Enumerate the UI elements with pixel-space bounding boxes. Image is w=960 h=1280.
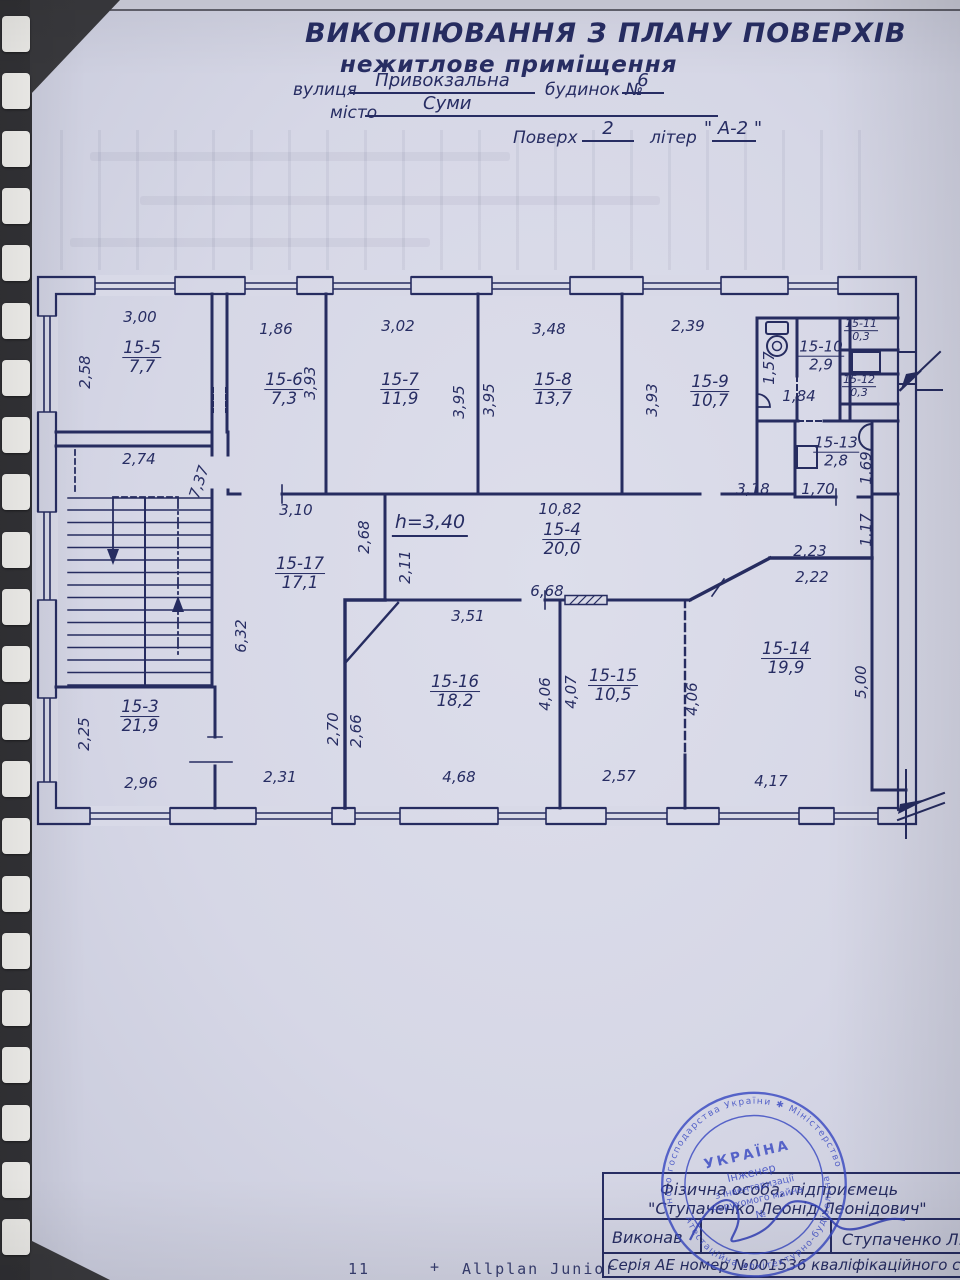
stairs-up-arrow	[172, 596, 184, 612]
room-area: 2,9	[798, 357, 844, 374]
dimension-label: 3,10	[279, 501, 312, 519]
dimension-label: 10,82	[539, 500, 582, 518]
hatched-opening	[565, 596, 607, 605]
dimension-label: 2,70	[324, 712, 342, 745]
room-area: 7,3	[264, 391, 303, 409]
footer-number: 11	[348, 1260, 370, 1278]
room-area: 13,7	[533, 391, 572, 409]
stairs-down-arrow	[107, 549, 119, 565]
signature	[655, 1178, 925, 1258]
room-number: 15-11	[844, 318, 878, 331]
room-number: 15-17	[275, 555, 325, 574]
room-area: 0,3	[844, 332, 878, 344]
room-number: 15-3	[120, 698, 159, 717]
section-mark-bottom	[898, 770, 944, 838]
dimension-label: 1,17	[857, 513, 875, 546]
dimension-label: 2,66	[347, 714, 365, 747]
dimension-label: 2,11	[396, 550, 414, 583]
room-area: 10,5	[588, 687, 638, 705]
dimension-label: 2,68	[355, 520, 373, 553]
room-number: 15-7	[380, 371, 419, 390]
room-number: 15-6	[264, 371, 303, 390]
room-label-15-11: 15-110,3	[844, 318, 878, 344]
room-label-15-7: 15-711,9	[380, 371, 419, 409]
room-area: 10,7	[690, 393, 729, 411]
room-area: 0,3	[842, 388, 876, 400]
dimension-label: 6,68	[530, 582, 563, 600]
dimension-label: 4,17	[754, 772, 787, 790]
dimension-label: 3,48	[532, 320, 565, 338]
dimension-label: 3,93	[643, 383, 661, 416]
interior-walls	[56, 294, 906, 808]
dimension-label: 6,32	[232, 619, 250, 652]
room-area: 20,0	[542, 541, 581, 559]
room-area: 2,8	[813, 453, 859, 470]
windows-top	[95, 275, 838, 296]
room-label-15-4: 15-420,0	[542, 521, 581, 559]
dimension-label: 1,69	[857, 451, 875, 484]
room-number: 15-8	[533, 371, 572, 390]
room-label-15-14: 15-1419,9	[761, 640, 811, 678]
dimension-label: 3,18	[736, 480, 769, 498]
dimension-label: 2,39	[671, 317, 704, 335]
footer-software: Allplan Junior	[462, 1260, 616, 1278]
footer-plus: +	[430, 1258, 441, 1276]
room-label-15-13: 15-132,8	[813, 435, 859, 470]
dimension-label: 2,25	[75, 717, 93, 750]
room-label-15-10: 15-102,9	[798, 339, 844, 374]
windows-left	[36, 316, 58, 782]
dimension-label: 2,57	[602, 767, 635, 785]
dimension-label: 4,07	[562, 675, 580, 708]
section-mark-top	[898, 352, 942, 392]
corner-sink-icon	[757, 394, 770, 407]
dimension-label: 2,22	[795, 568, 828, 586]
dimension-label: 3,95	[450, 385, 468, 418]
room-number: 15-13	[813, 435, 859, 453]
dimension-label: 1,86	[259, 320, 292, 338]
room-label-15-6: 15-67,3	[264, 371, 303, 409]
room-number: 15-4	[542, 521, 581, 540]
room-label-15-17: 15-1717,1	[275, 555, 325, 593]
room-number: 15-10	[798, 339, 844, 357]
room-label-15-9: 15-910,7	[690, 373, 729, 411]
dimension-label: 1,84	[782, 387, 815, 405]
dimension-label: 2,31	[263, 768, 296, 786]
ceiling-height-note: h=3,40	[392, 511, 468, 537]
room-area: 19,9	[761, 660, 811, 678]
room-area: 18,2	[430, 693, 480, 711]
room-number: 15-9	[690, 373, 729, 392]
dimension-label: 5,00	[852, 665, 870, 698]
room-number: 15-15	[588, 667, 638, 686]
room-area: 21,9	[120, 718, 159, 736]
room-label-15-8: 15-813,7	[533, 371, 572, 409]
room-label-15-16: 15-1618,2	[430, 673, 480, 711]
room-area: 7,7	[122, 359, 161, 377]
dimension-label: 4,06	[683, 682, 701, 715]
photographed-floor-plan-document: ВИКОПІЮВАННЯ З ПЛАНУ ПОВЕРХІВ нежитлове …	[0, 0, 960, 1280]
room-area: 11,9	[380, 391, 419, 409]
dimension-label: 1,57	[760, 351, 778, 384]
room-number: 15-5	[122, 339, 161, 358]
dimension-label: 4,68	[442, 768, 475, 786]
dimension-label: 2,58	[76, 355, 94, 388]
room-label-15-3: 15-321,9	[120, 698, 159, 736]
dimension-label: 2,23	[793, 542, 826, 560]
dimension-label: 3,95	[480, 383, 498, 416]
dimension-label: 3,51	[451, 607, 484, 625]
room-number: 15-12	[842, 374, 876, 387]
room-number: 15-14	[761, 640, 811, 659]
sink-icon	[859, 424, 872, 450]
dimension-label: 1,70	[801, 480, 834, 498]
dimension-label: 3,00	[123, 308, 156, 326]
room-label-15-5: 15-57,7	[122, 339, 161, 377]
dimension-label: 2,96	[124, 774, 157, 792]
room-label-15-12: 15-120,3	[842, 374, 876, 400]
dimension-label: 4,06	[536, 677, 554, 710]
room-label-15-15: 15-1510,5	[588, 667, 638, 705]
dimension-label: 3,02	[381, 317, 414, 335]
room-area: 17,1	[275, 575, 325, 593]
dimension-label: 2,74	[122, 450, 155, 468]
room-number: 15-16	[430, 673, 480, 692]
